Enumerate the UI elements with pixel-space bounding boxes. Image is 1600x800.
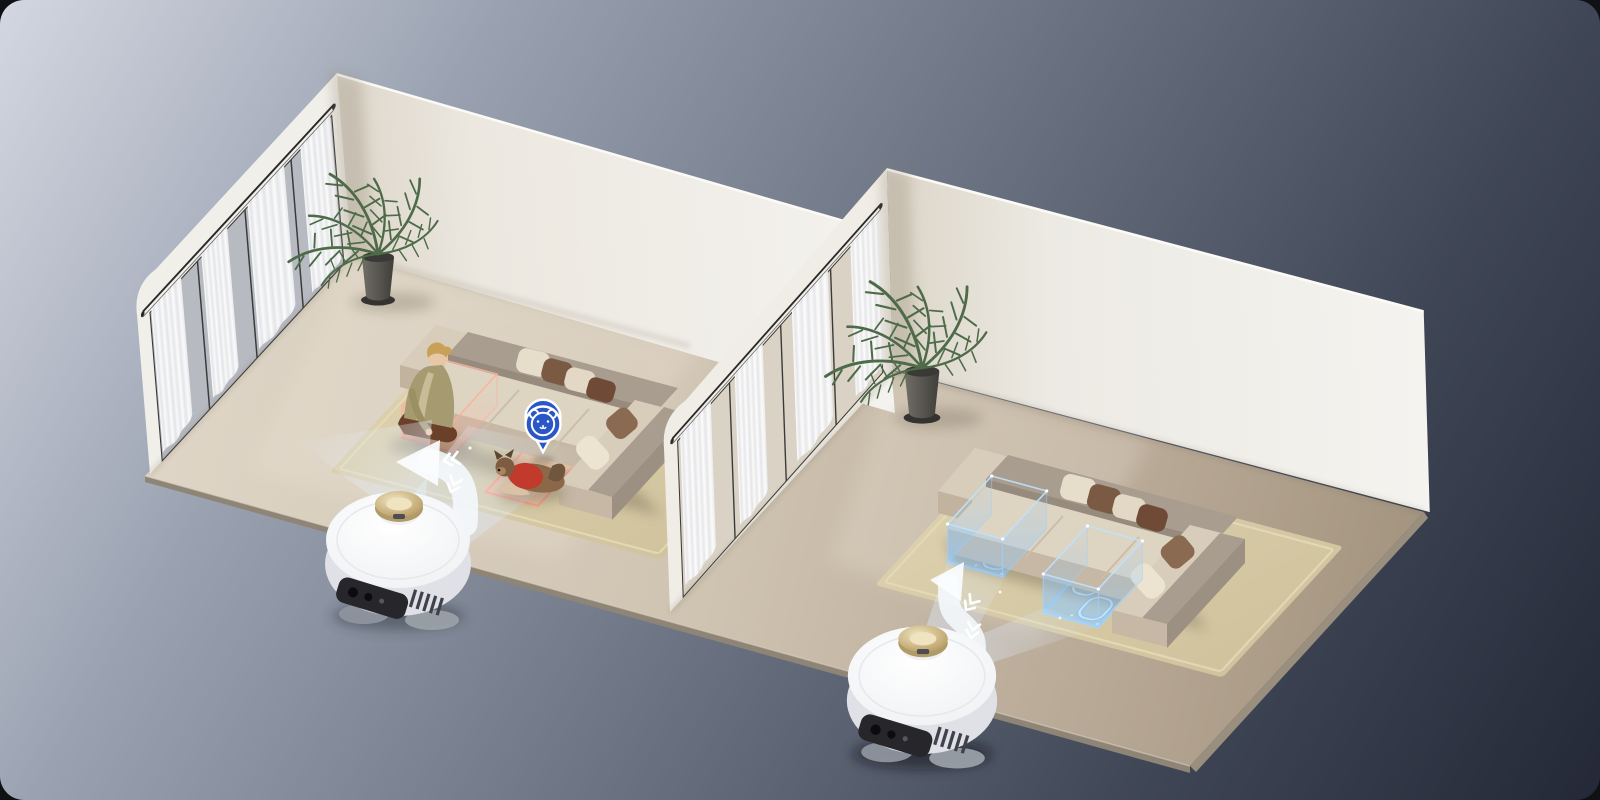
scene-svg: [0, 0, 1600, 800]
right-robot-vacuum: [847, 625, 997, 769]
left-robot-vacuum: [325, 491, 471, 630]
marketing-render: [0, 0, 1600, 800]
